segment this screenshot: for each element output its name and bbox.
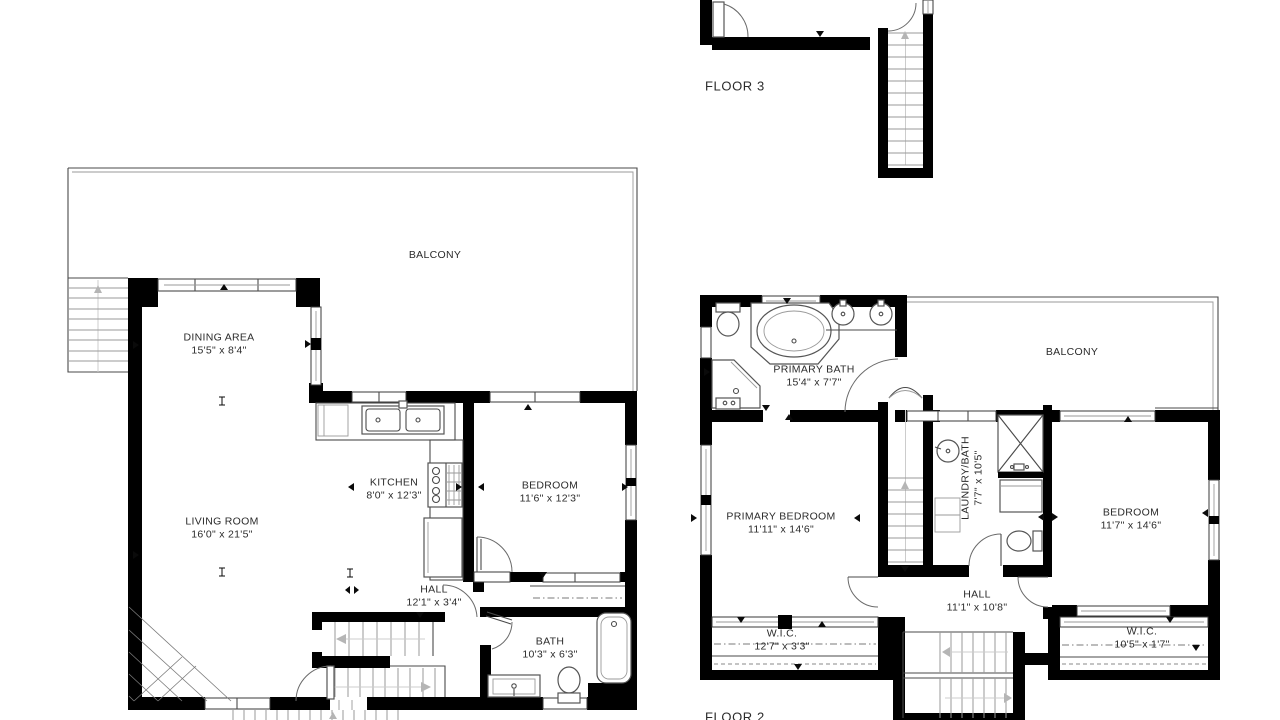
floor3-window-icon bbox=[923, 0, 933, 14]
floor1-closet bbox=[530, 586, 625, 598]
room-dims: 11'11" x 14'6" bbox=[726, 523, 835, 536]
floor1-exterior-steps-icon bbox=[233, 710, 398, 720]
floor2-laundry-fixtures bbox=[935, 415, 1043, 566]
room-name: BEDROOM bbox=[1101, 507, 1162, 520]
room-name: PRIMARY BATH bbox=[773, 364, 854, 377]
room-dims: 16'0" x 21'5" bbox=[185, 528, 258, 541]
room-name: LIVING ROOM bbox=[185, 516, 258, 529]
room-label-f1-living: LIVING ROOM 16'0" x 21'5" bbox=[185, 516, 258, 541]
room-label-f1-dining: DINING AREA 15'5" x 8'4" bbox=[184, 332, 255, 357]
floor1-corner-hatch bbox=[129, 607, 231, 701]
room-label-f2-bedroom: BEDROOM 11'7" x 14'6" bbox=[1101, 507, 1162, 532]
room-dims: 15'4" x 7'7" bbox=[773, 376, 854, 389]
room-label-f1-hall: HALL 12'1" x 3'4" bbox=[406, 584, 461, 609]
room-dims: 12'1" x 3'4" bbox=[406, 596, 461, 609]
floor2-title: FLOOR 2 bbox=[705, 710, 765, 720]
room-dims: 10'3" x 6'3" bbox=[522, 648, 577, 661]
room-name: W.I.C. bbox=[1114, 626, 1169, 639]
room-dims: 8'0" x 12'3" bbox=[366, 489, 421, 502]
room-name: HALL bbox=[406, 584, 461, 597]
room-label-f2-balcony: BALCONY bbox=[1046, 346, 1098, 359]
floor3-stairs-icon bbox=[888, 31, 923, 165]
room-name: LAUNDRY/BATH bbox=[960, 436, 973, 520]
room-label-f1-bedroom: BEDROOM 11'6" x 12'3" bbox=[520, 480, 581, 505]
floor2-stairs-down-icon bbox=[903, 632, 1013, 718]
floor1-bedroom-door-icon bbox=[474, 537, 512, 582]
room-name: DINING AREA bbox=[184, 332, 255, 345]
room-dims: 12'7" x 3'3" bbox=[754, 640, 809, 653]
room-label-f1-balcony: BALCONY bbox=[409, 249, 461, 262]
room-name: HALL bbox=[947, 589, 1008, 602]
room-label-f2-primary-bedroom: PRIMARY BEDROOM 11'11" x 14'6" bbox=[726, 511, 835, 536]
room-dims: 15'5" x 8'4" bbox=[184, 344, 255, 357]
room-label-f2-primary-bath: PRIMARY BATH 15'4" x 7'7" bbox=[773, 364, 854, 389]
room-name: BATH bbox=[522, 636, 577, 649]
room-name: W.I.C. bbox=[754, 628, 809, 641]
floorplan-canvas bbox=[0, 0, 1280, 720]
room-name: KITCHEN bbox=[366, 477, 421, 490]
dimension-tick bbox=[816, 31, 824, 37]
room-label-f2-hall: HALL 11'1" x 10'8" bbox=[947, 589, 1008, 614]
room-label-f1-bath: BATH 10'3" x 6'3" bbox=[522, 636, 577, 661]
room-dims: 7'7" x 10'5" bbox=[972, 436, 985, 520]
room-dims: 10'5" x 1'7" bbox=[1114, 638, 1169, 651]
room-name: BEDROOM bbox=[520, 480, 581, 493]
floorplan-page: FLOOR 3 FLOOR 2 BALCONY DINING AREA 15'5… bbox=[0, 0, 1280, 720]
room-label-f1-kitchen: KITCHEN 8'0" x 12'3" bbox=[366, 477, 421, 502]
floor3-title: FLOOR 3 bbox=[705, 79, 765, 94]
room-name: PRIMARY BEDROOM bbox=[726, 511, 835, 524]
room-label-f2-wic-right: W.I.C. 10'5" x 1'7" bbox=[1114, 626, 1169, 651]
room-dims: 11'7" x 14'6" bbox=[1101, 519, 1162, 532]
room-dims: 11'6" x 12'3" bbox=[520, 492, 581, 505]
room-dims: 11'1" x 10'8" bbox=[947, 601, 1008, 614]
floor2-primary-bath-fixtures bbox=[712, 300, 898, 412]
floor1-bath-door-icon bbox=[486, 612, 512, 649]
room-label-f2-laundry-bath: LAUNDRY/BATH 7'7" x 10'5" bbox=[960, 436, 985, 520]
floor1-balcony-stairs-icon bbox=[68, 280, 128, 372]
room-label-f2-wic-left: W.I.C. 12'7" x 3'3" bbox=[754, 628, 809, 653]
